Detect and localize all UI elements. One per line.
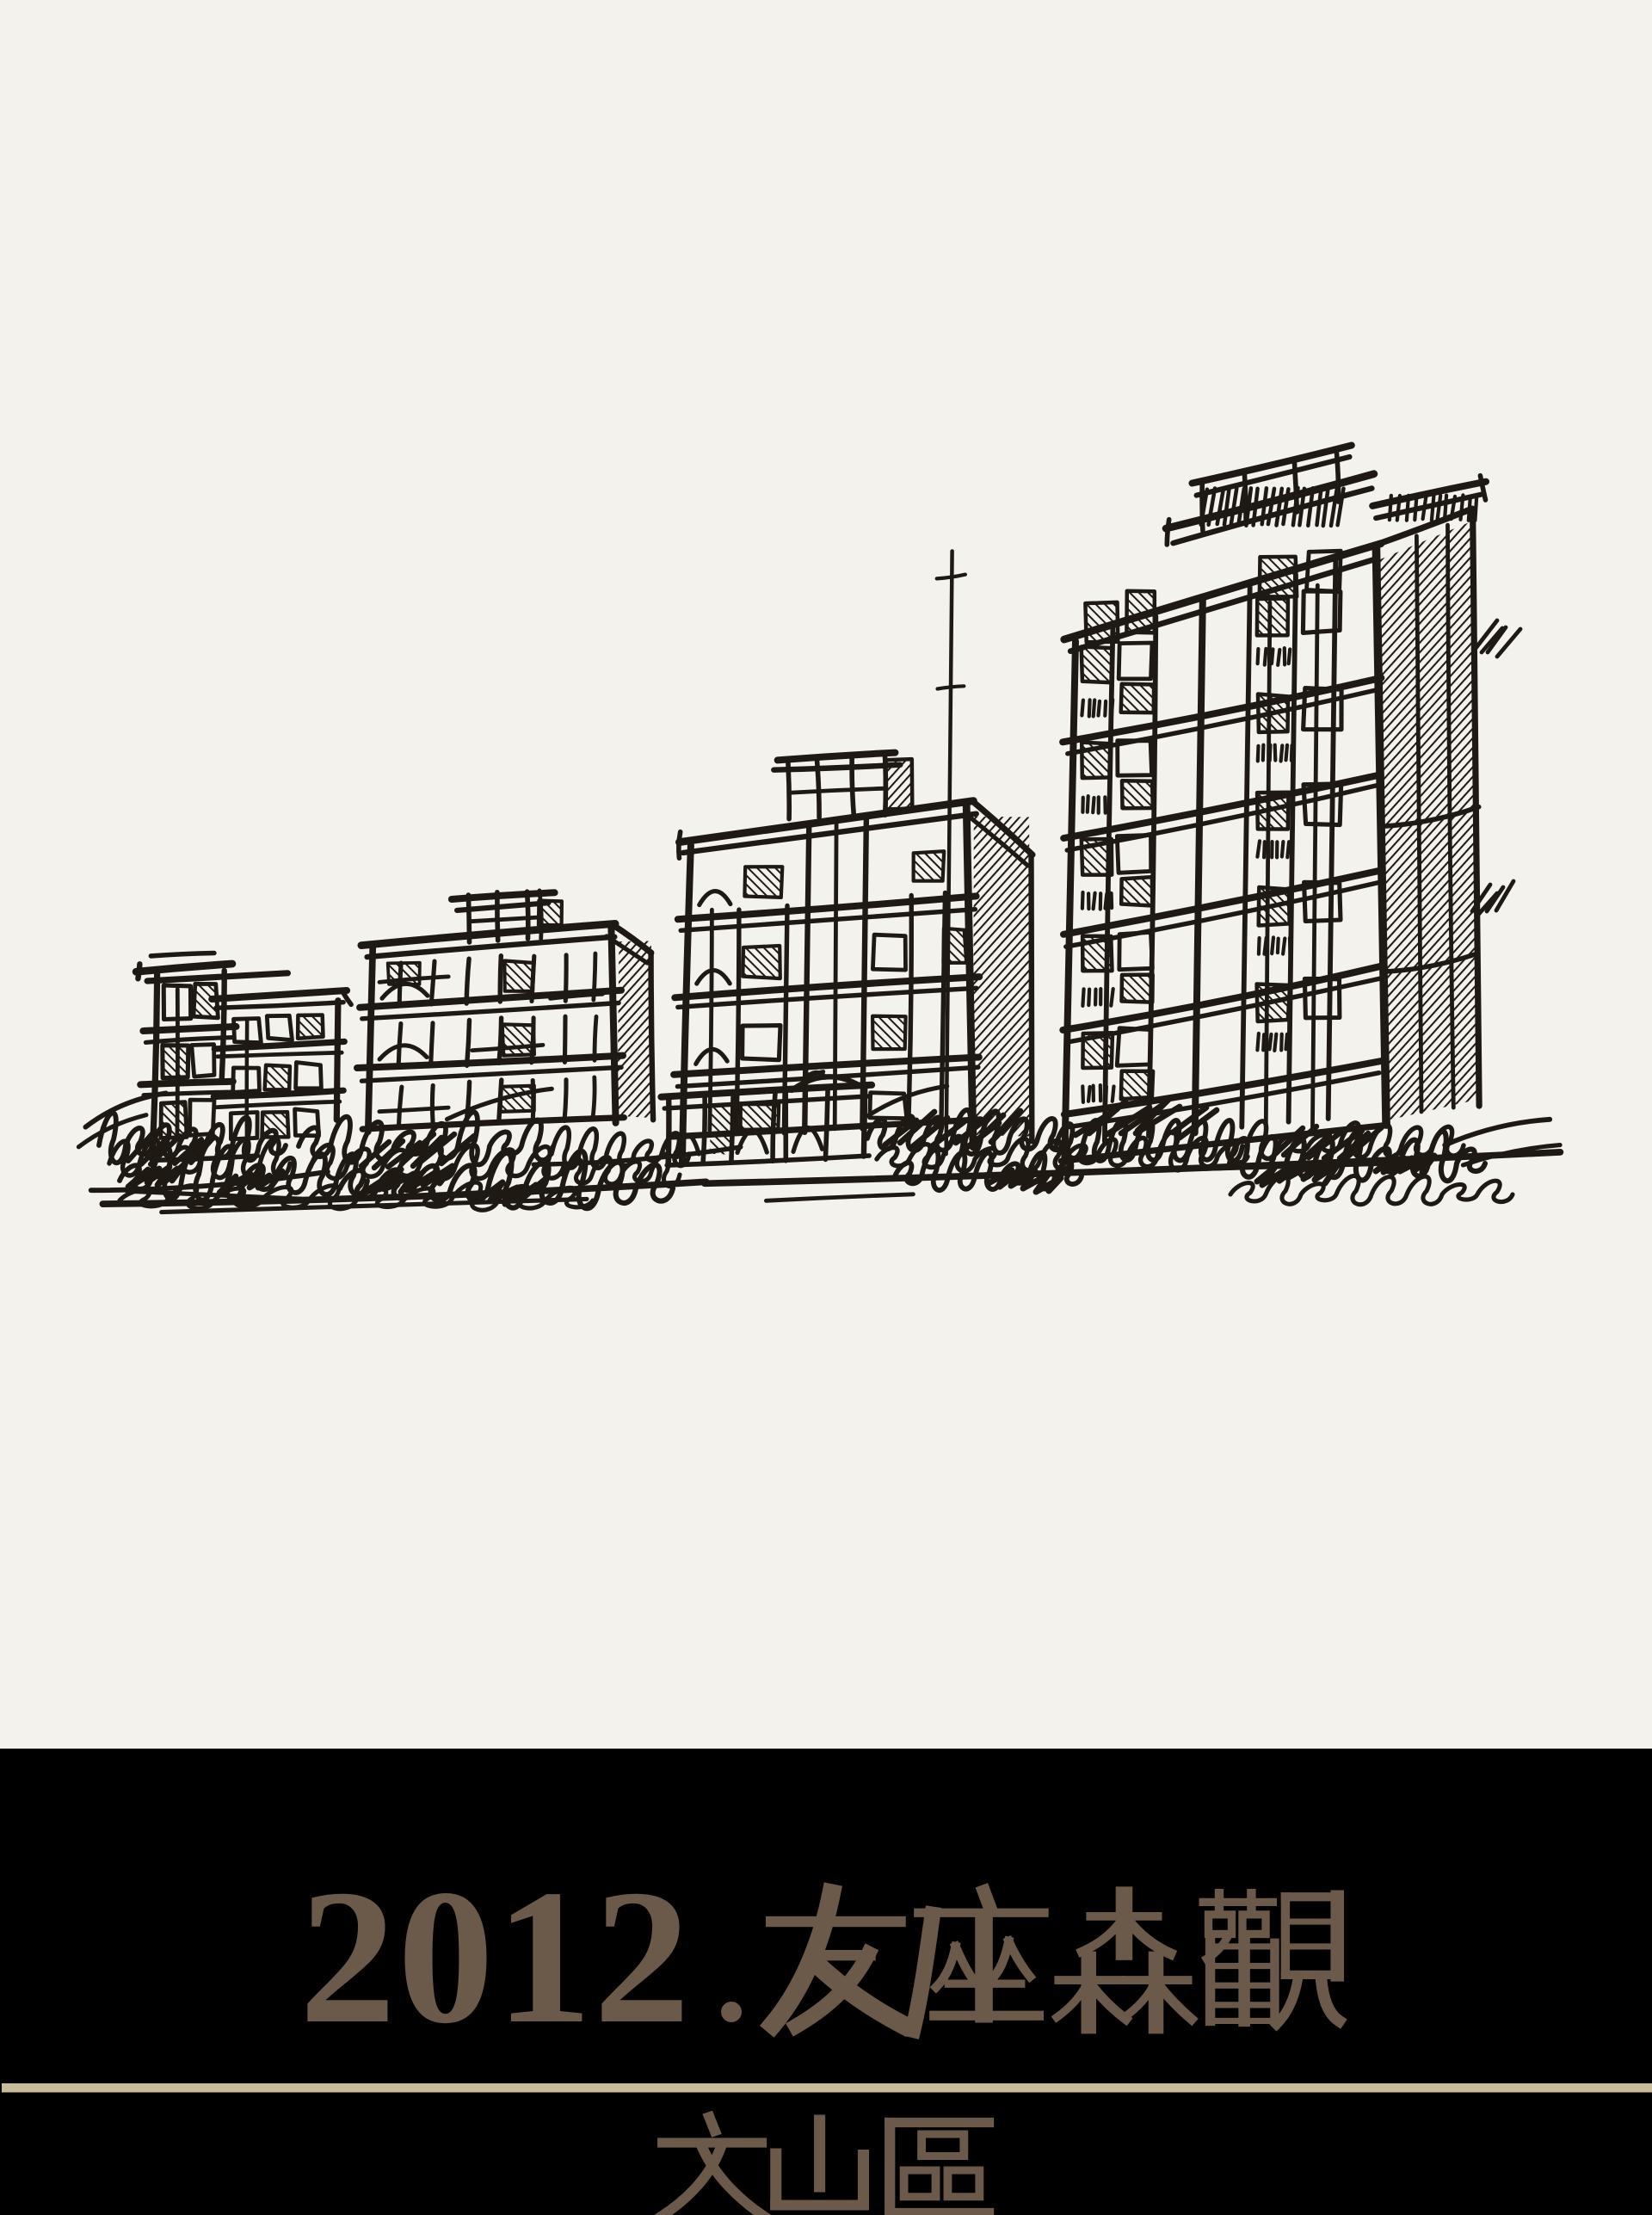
svg-text:2012: 2012 (299, 1850, 692, 2064)
